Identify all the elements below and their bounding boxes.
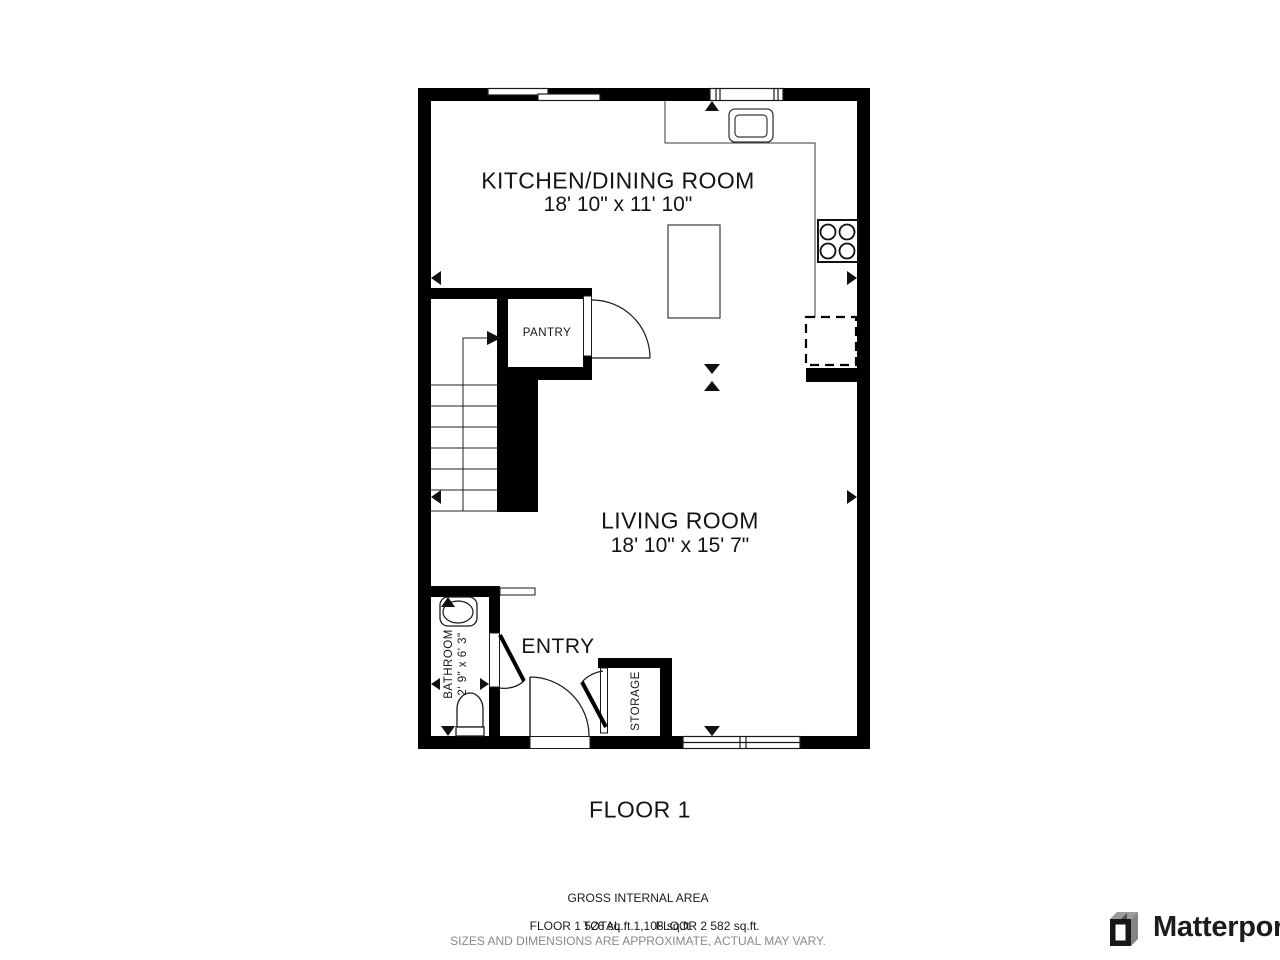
wall-kitchen-stub (806, 368, 870, 382)
floorplan-page: KITCHEN/DINING ROOM 18' 10" x 11' 10" LI… (0, 0, 1280, 960)
arrow-down-icon (704, 726, 720, 736)
kitchen-fixtures (665, 101, 858, 365)
arrow-left-icon (431, 271, 441, 285)
pantry-door-frame (584, 296, 592, 356)
window-kitchen (710, 89, 783, 101)
entry-shelf (500, 588, 535, 595)
matterport-logo-icon (1102, 906, 1146, 950)
arrow-right-icon (480, 678, 489, 690)
entry-label: ENTRY (521, 635, 594, 659)
living-room-dimensions: 18' 10" x 15' 7" (611, 534, 750, 558)
bathroom-label-name: BATHROOM (442, 629, 456, 699)
arrow-up-icon (705, 101, 719, 111)
bathroom-label-dimensions: 2' 9" x 6' 3" (456, 629, 470, 699)
entry-door-threshold (530, 737, 590, 749)
entry-door-arc (530, 677, 589, 736)
wall-bathroom-top (418, 586, 500, 597)
storage-door-arc (582, 671, 603, 682)
kitchen-island (668, 225, 720, 318)
wall-bathroom-right-upper (489, 586, 500, 633)
bathroom-door-arc (499, 681, 524, 688)
matterport-logo-text: Matterport (1153, 911, 1280, 944)
arrow-right-icon (847, 490, 857, 504)
footer-total-area: TOTAL : 1,108 sq.ft. (583, 919, 693, 933)
wall-stair-block (497, 380, 538, 512)
wall-storage-top (598, 658, 672, 668)
footer-gross-area-title: GROSS INTERNAL AREA (568, 891, 709, 905)
stair-direction-line (463, 338, 487, 511)
wall-pantry-left (497, 288, 508, 380)
wall-pantry-bottom (497, 367, 592, 380)
window-sliding-sash-2 (538, 94, 600, 101)
kitchen-room-dimensions: 18' 10" x 11' 10" (544, 193, 693, 217)
arrow-right-icon (847, 271, 857, 285)
appliance-dashed-box (806, 317, 856, 365)
kitchen-room-label: KITCHEN/DINING ROOM (481, 168, 754, 195)
living-room-label: LIVING ROOM (601, 508, 759, 535)
wall-bathroom-right-lower (489, 687, 500, 736)
wall-storage-right (660, 668, 672, 736)
arrow-up-icon (704, 381, 720, 391)
wall-left (418, 88, 431, 749)
pantry-label: PANTRY (523, 327, 572, 339)
wall-top (418, 88, 870, 101)
arrow-left-icon (431, 678, 440, 690)
wall-bottom (418, 736, 870, 749)
sink-basin-icon (735, 115, 767, 137)
arrow-left-icon (431, 490, 441, 504)
stairs (431, 331, 501, 511)
matterport-logo: Matterport (1102, 906, 1146, 950)
footer-disclaimer: SIZES AND DIMENSIONS ARE APPROXIMATE, AC… (450, 934, 826, 948)
toilet-tank-icon (456, 727, 484, 736)
bathroom-label: BATHROOM 2' 9" x 6' 3" (442, 629, 470, 699)
arrow-down-icon (704, 364, 720, 374)
storage-label: STORAGE (630, 671, 642, 731)
pantry-door-arc (592, 300, 650, 358)
wall-right (857, 88, 870, 749)
arrow-down-icon (441, 726, 455, 736)
stove-icon (818, 220, 858, 262)
bathroom-door-frame (490, 633, 500, 687)
floor-title: FLOOR 1 (589, 797, 691, 824)
